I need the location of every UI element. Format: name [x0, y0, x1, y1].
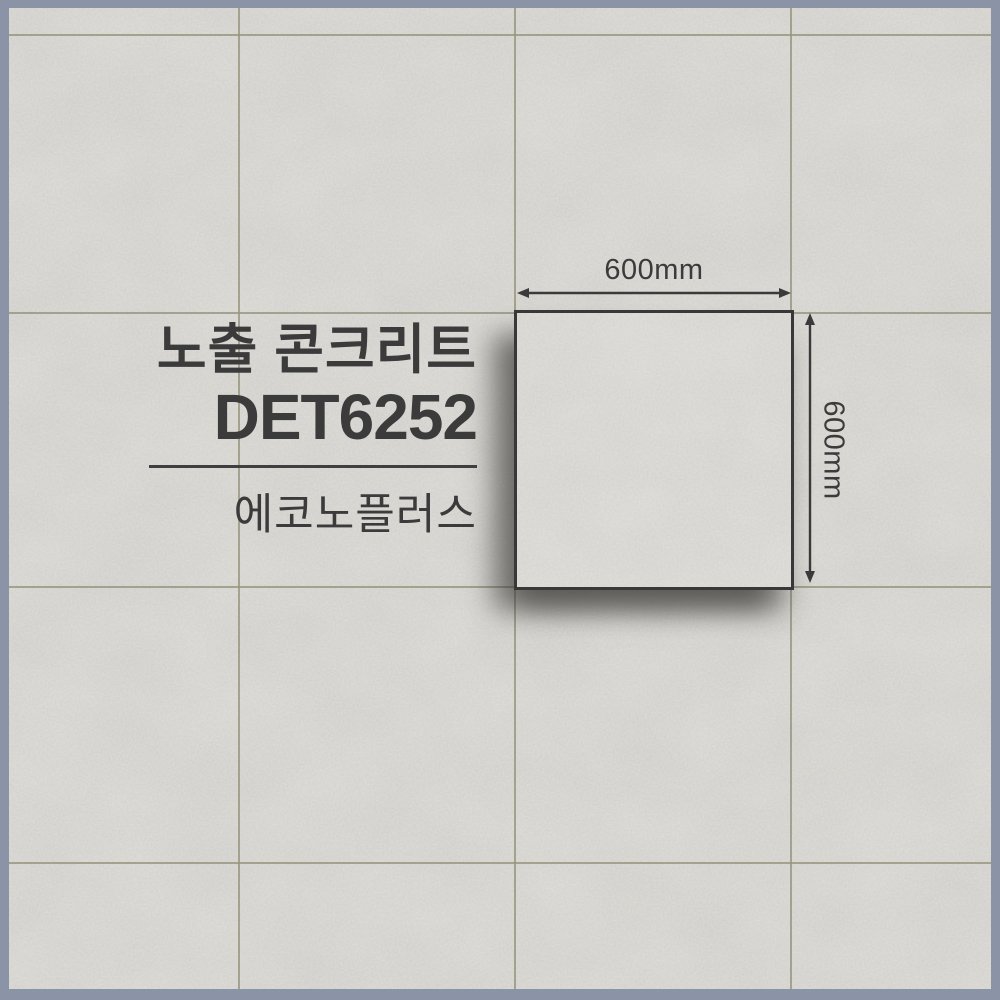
highlighted-tile	[514, 310, 794, 590]
brand-name: 에코노플러스	[149, 480, 477, 542]
height-dimension-label: 600mm	[817, 400, 850, 499]
product-category-title: 노출 콘크리트	[149, 322, 477, 379]
grout-line-horizontal	[9, 862, 991, 864]
grout-line-horizontal	[9, 34, 991, 36]
product-image: 600mm 600mm 노출 콘크리트 DET6252 에코노플러스	[0, 0, 1000, 1000]
product-code: DET6252	[149, 385, 477, 449]
width-dimension-label: 600mm	[514, 254, 794, 287]
caption-divider	[149, 465, 477, 468]
product-caption: 노출 콘크리트 DET6252 에코노플러스	[149, 322, 477, 542]
grout-line-horizontal	[9, 312, 991, 314]
width-dimension-arrow-icon	[516, 285, 792, 301]
grout-line-horizontal	[9, 586, 991, 588]
highlighted-tile-texture	[517, 313, 791, 587]
